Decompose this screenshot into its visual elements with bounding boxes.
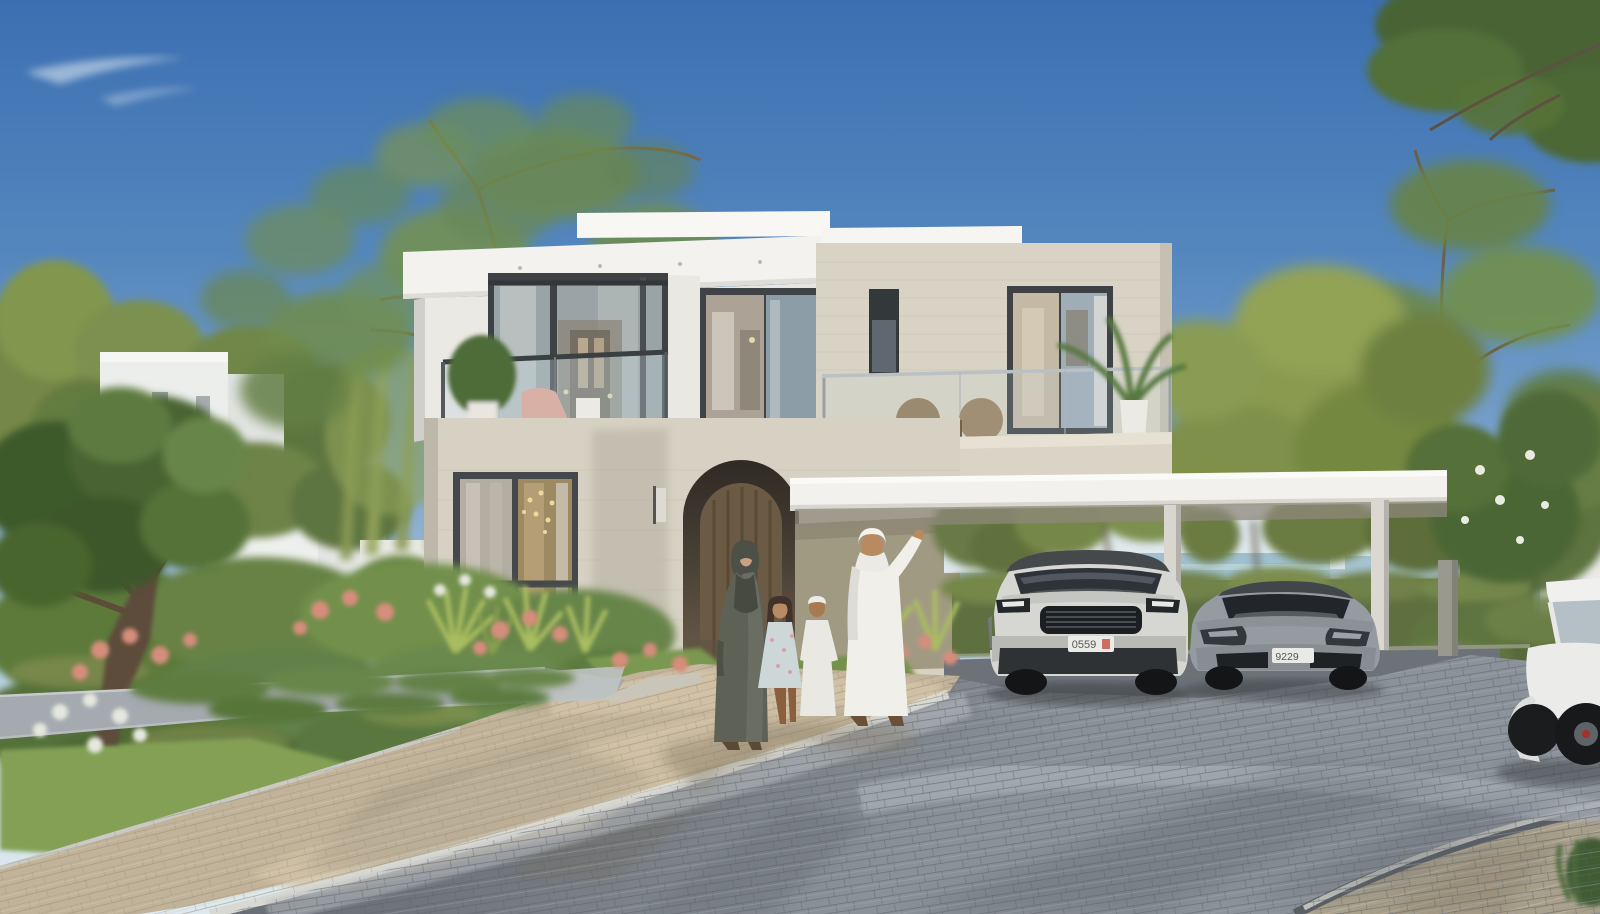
svg-text:0559: 0559 <box>1072 639 1096 651</box>
svg-text:9229: 9229 <box>1275 651 1299 663</box>
